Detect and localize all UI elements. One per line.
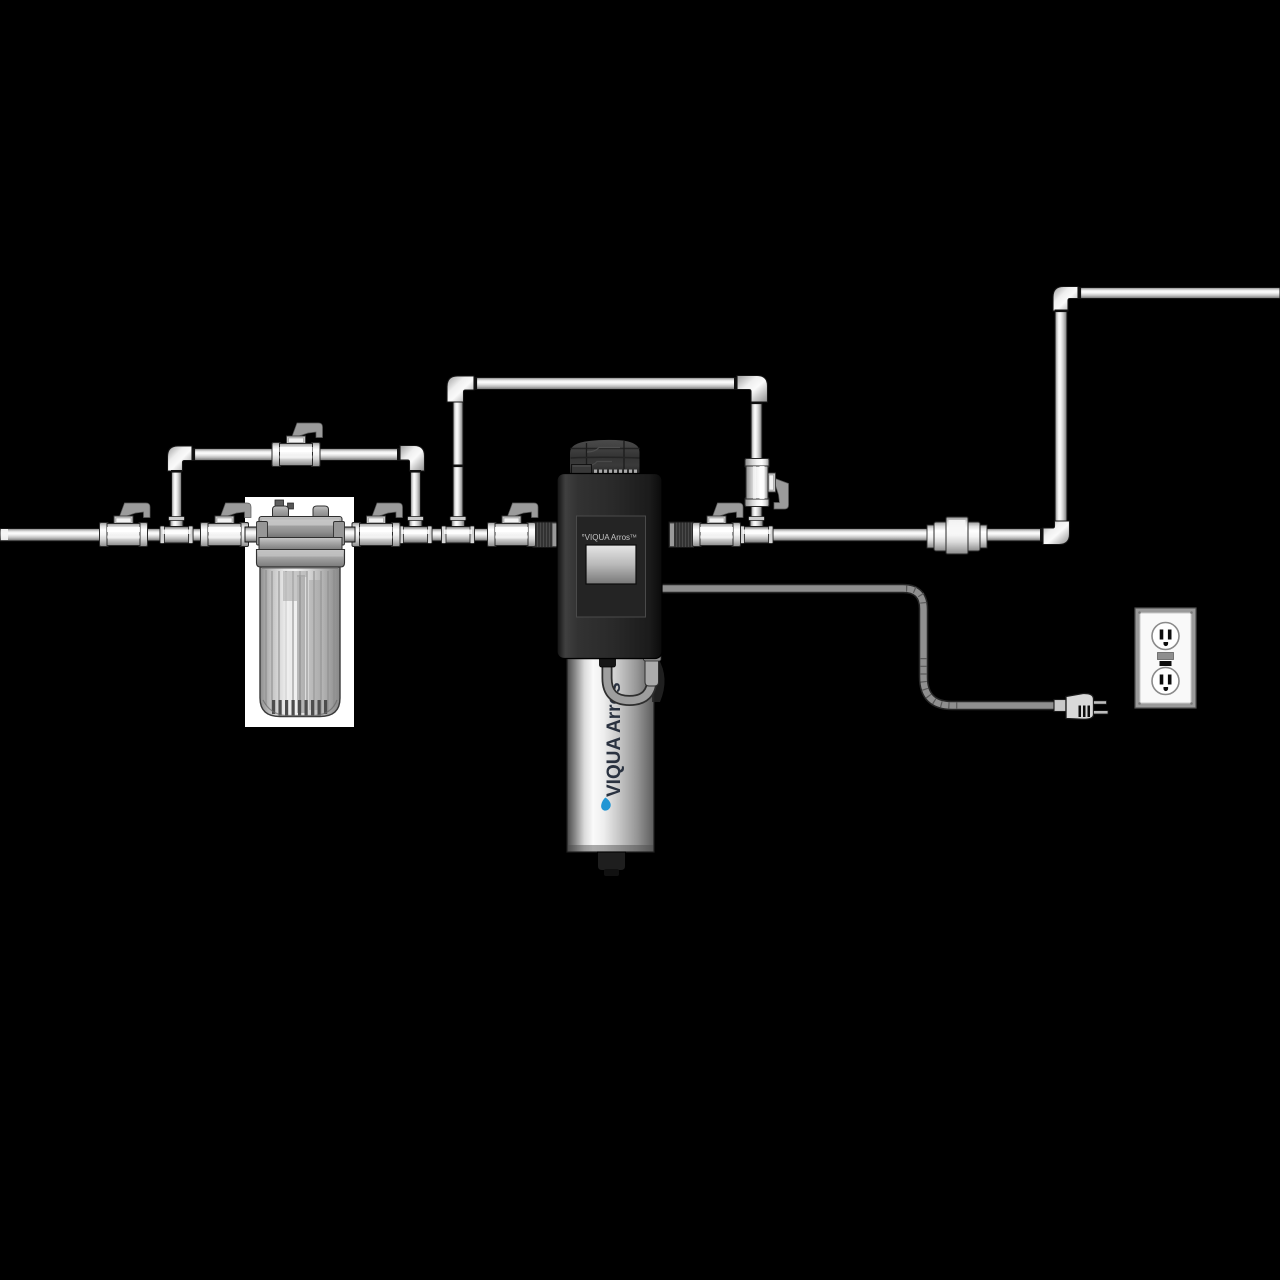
svg-text:°VIQUA ArrosTM: °VIQUA ArrosTM xyxy=(581,533,636,542)
